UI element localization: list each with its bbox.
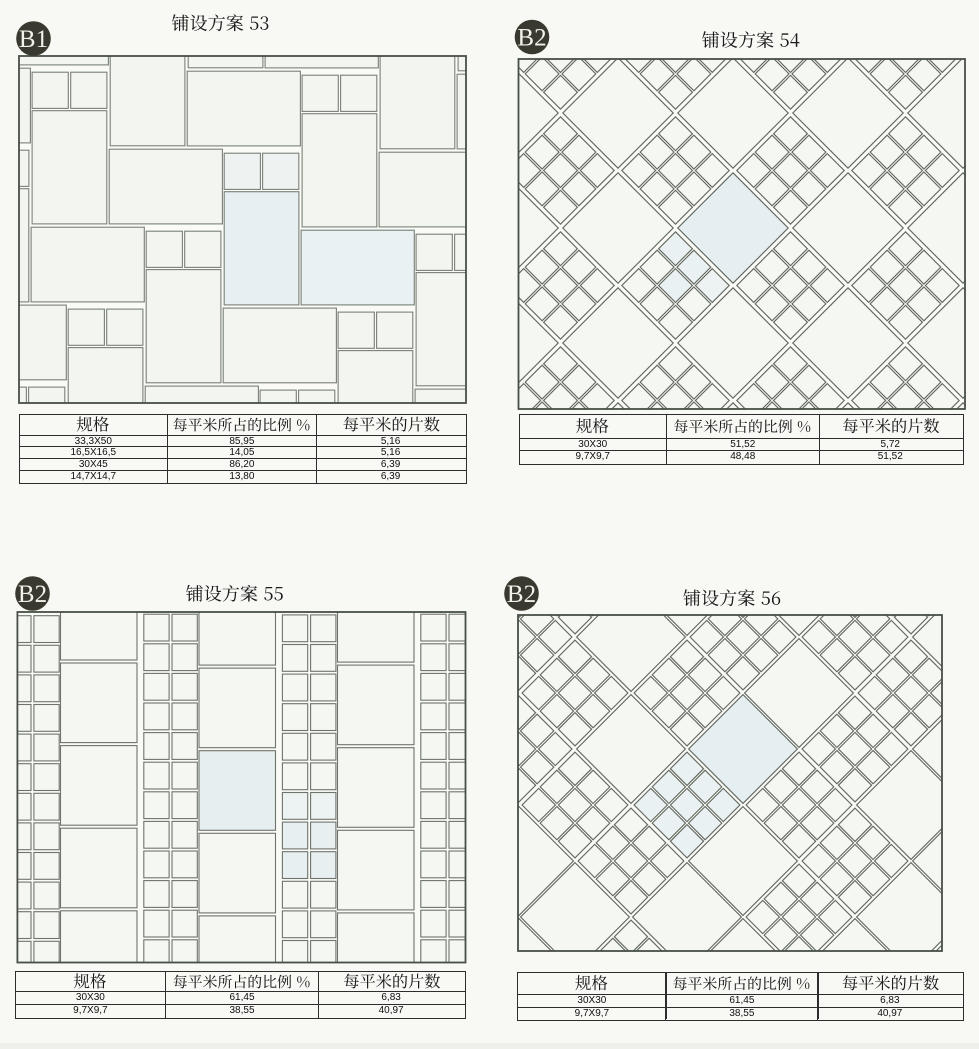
svg-text:B2: B2 — [507, 581, 536, 608]
svg-text:B2: B2 — [517, 25, 546, 52]
svg-text:B2: B2 — [18, 581, 47, 608]
svg-text:B1: B1 — [19, 26, 48, 53]
